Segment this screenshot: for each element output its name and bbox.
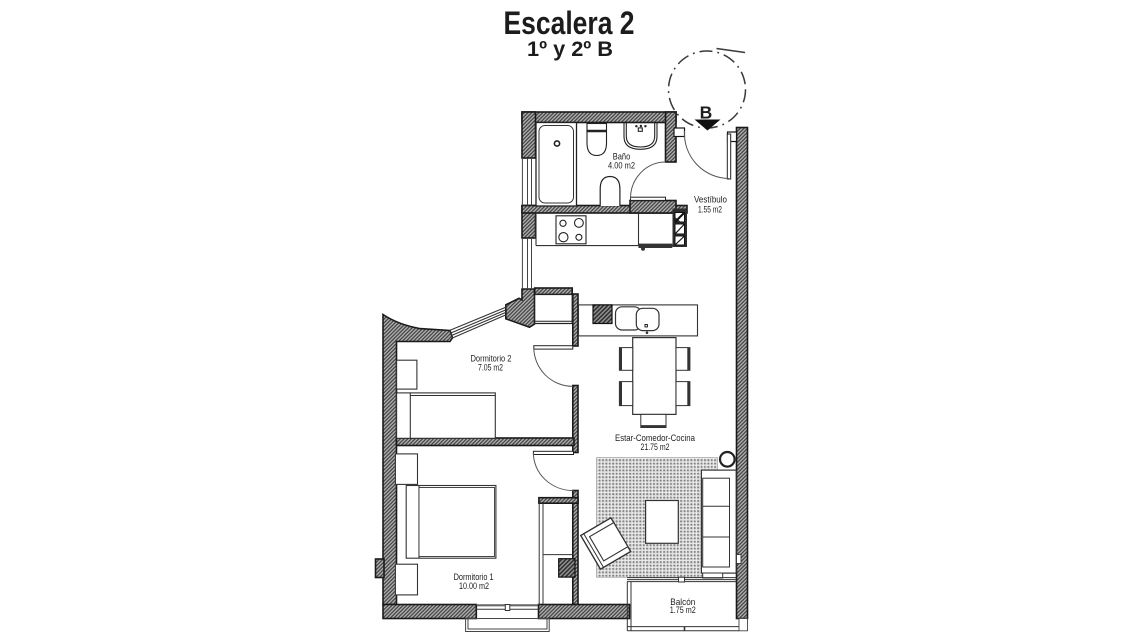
- svg-text:1.75 m2: 1.75 m2: [670, 605, 696, 615]
- svg-text:1.55 m2: 1.55 m2: [698, 205, 722, 215]
- svg-text:7.05 m2: 7.05 m2: [478, 362, 503, 372]
- svg-text:21.75 m2: 21.75 m2: [641, 442, 670, 452]
- svg-text:Vestíbulo: Vestíbulo: [694, 195, 727, 205]
- svg-text:10.00 m2: 10.00 m2: [459, 581, 489, 591]
- svg-text:1º y 2º B: 1º y 2º B: [527, 37, 613, 61]
- svg-text:4.00 m2: 4.00 m2: [608, 161, 635, 171]
- svg-text:Escalera 2: Escalera 2: [504, 5, 635, 41]
